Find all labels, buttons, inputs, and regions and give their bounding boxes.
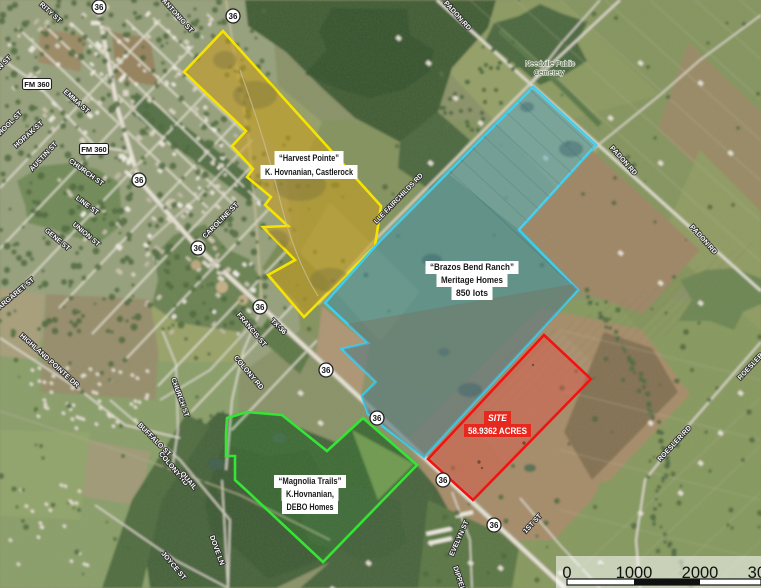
svg-text:K.Hovnanian,: K.Hovnanian, [286, 489, 334, 499]
svg-text:“Magnolia Trails”: “Magnolia Trails” [279, 476, 342, 486]
svg-text:36: 36 [194, 244, 203, 253]
svg-text:“Harvest Pointe”: “Harvest Pointe” [279, 153, 339, 163]
svg-text:FM 360: FM 360 [24, 80, 49, 89]
svg-text:Needville Public: Needville Public [525, 61, 575, 68]
svg-text:Cemetery: Cemetery [534, 70, 565, 77]
svg-text:36: 36 [95, 3, 104, 12]
svg-text:36: 36 [322, 366, 331, 375]
svg-text:36: 36 [439, 476, 448, 485]
svg-text:Meritage Homes: Meritage Homes [441, 275, 503, 285]
svg-text:850 lots: 850 lots [456, 288, 488, 298]
svg-text:36: 36 [256, 303, 265, 312]
svg-text:“Brazos Bend Ranch”: “Brazos Bend Ranch” [430, 262, 514, 272]
svg-text:FM 360: FM 360 [81, 145, 106, 154]
svg-text:36: 36 [373, 414, 382, 423]
svg-text:K. Hovnanian, Castlerock: K. Hovnanian, Castlerock [265, 167, 354, 177]
svg-text:58.9362 ACRES: 58.9362 ACRES [468, 426, 527, 437]
svg-text:36: 36 [490, 521, 499, 530]
svg-text:36: 36 [229, 12, 238, 21]
svg-text:36: 36 [135, 176, 144, 185]
svg-text:SITE: SITE [488, 413, 508, 424]
svg-text:DEBO Homes: DEBO Homes [287, 502, 334, 512]
